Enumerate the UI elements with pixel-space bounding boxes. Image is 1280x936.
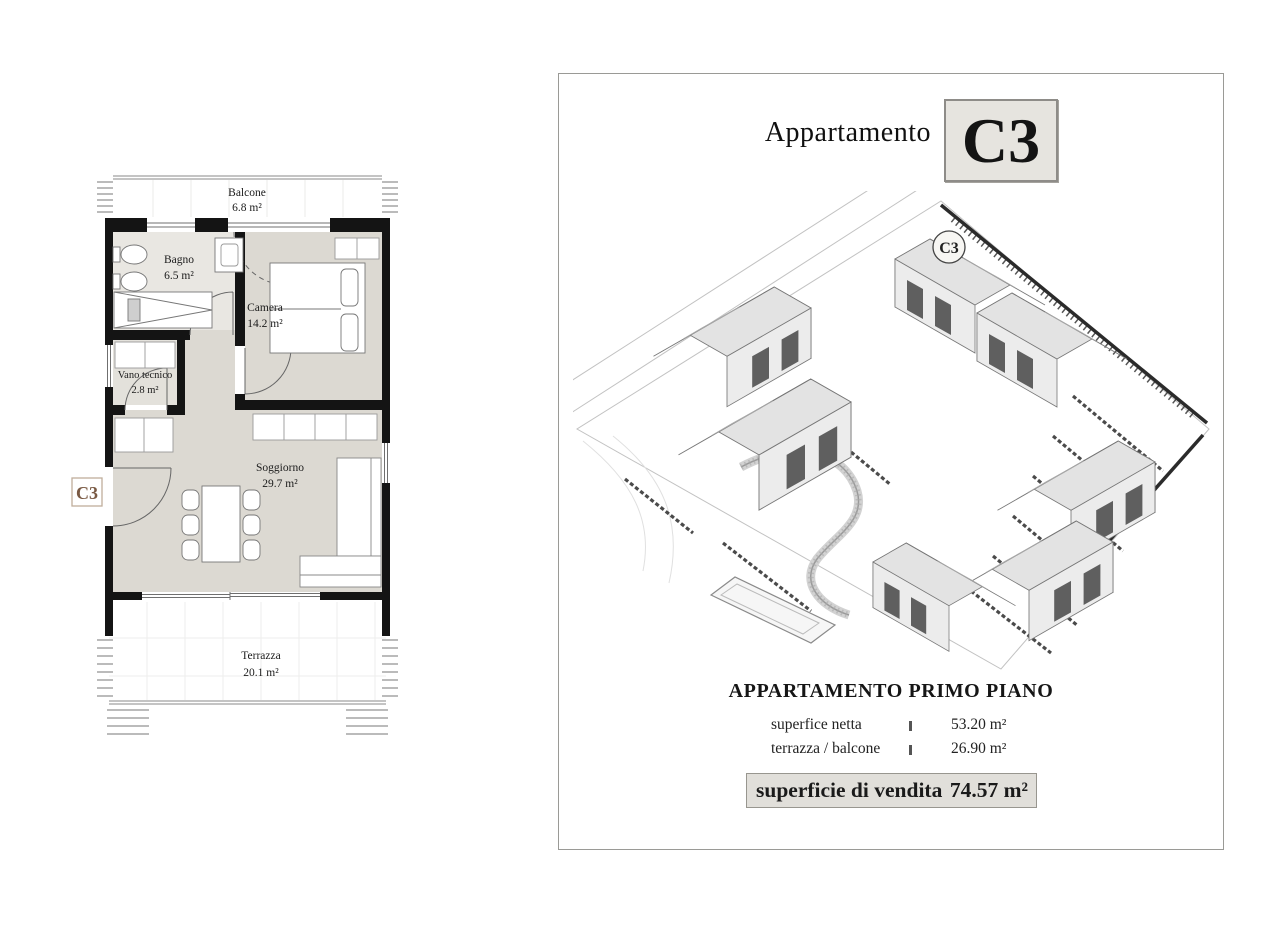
kitchen-counter [253,414,377,440]
balcone-railing [113,176,382,179]
soggiorno-label: Soggiorno [256,462,304,474]
soggiorno-area: 29.7 m² [262,478,298,490]
balcone-area: 6.8 m² [232,202,262,214]
shower [114,292,212,328]
c3-badge-label: C3 [939,240,959,257]
total-area-label: superficie di vendita [756,778,942,803]
balcone-label: Balcone [228,187,266,199]
unit-tag-label: C3 [76,483,98,503]
bed [270,263,365,353]
site-plan-3d: C3 [573,191,1217,673]
dining-set [182,486,260,562]
camera-label: Camera [247,302,283,314]
c3-badge: C3 [933,231,965,263]
unit-code-box: C3 [944,99,1058,182]
floor-plan: C3 [62,168,402,740]
summary-separator [909,745,912,755]
terrazza-area: 20.1 m² [243,667,279,679]
unit-tag: C3 [72,478,102,506]
summary-heading: APPARTAMENTO PRIMO PIANO [559,680,1223,703]
dining-table [202,486,240,562]
summary-row-value: 53.20 m² [951,716,1006,734]
toilet [113,272,147,291]
vano-area: 2.8 m² [131,385,158,396]
page: C3 [0,0,1280,936]
total-area-value: 74.57 m² [950,778,1028,803]
summary-row-label: superfice netta [771,716,862,734]
wardrobe [335,238,379,259]
terrazza-edge [109,701,386,704]
bagno-label: Bagno [164,254,194,266]
vano-shelves [115,342,175,368]
summary-row-label: terrazza / balcone [771,740,880,758]
bidet [113,245,147,264]
washbasin [215,238,243,272]
closet [115,418,173,452]
terrazza-label: Terrazza [241,650,280,662]
camera-area: 14.2 m² [247,318,283,330]
total-area-box: superficie di vendita 74.57 m² [746,773,1037,808]
vano-label: Vano tecnico [118,370,173,381]
summary-separator [909,721,912,731]
panel-title: Appartamento [765,116,931,150]
bagno-area: 6.5 m² [164,270,194,282]
sheet-panel: Appartamento C3 [558,73,1224,850]
summary-row-value: 26.90 m² [951,740,1006,758]
